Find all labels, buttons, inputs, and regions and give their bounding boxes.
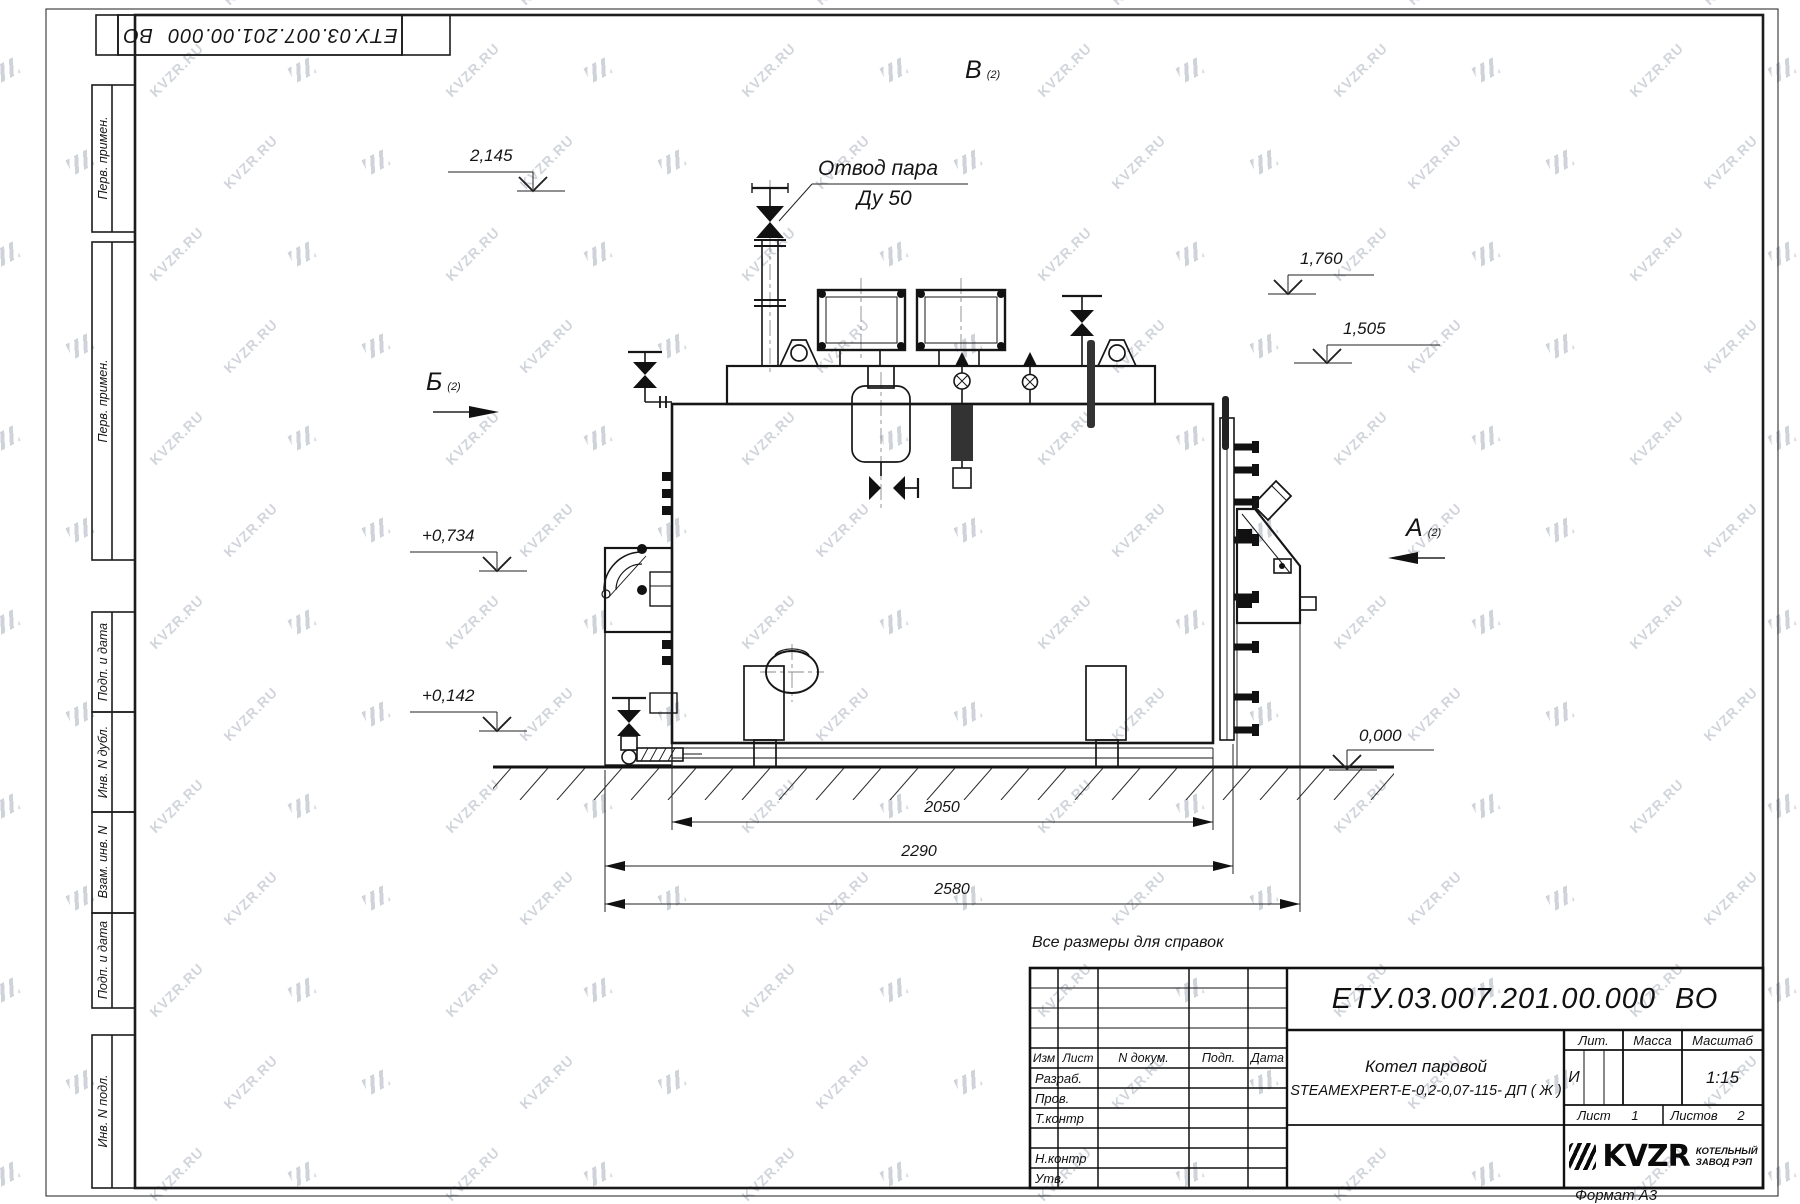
company-logo-icon [1569, 1143, 1596, 1170]
tb-col-data: Дата [1248, 1048, 1287, 1068]
tb-masshtab-label: Масштаб [1682, 1031, 1763, 1049]
level-value-1760: 1,760 [1300, 249, 1343, 269]
view-suffix: (2) [447, 381, 460, 393]
drawing-sheet: { "watermark": { "text": "KVZR.RU" }, "m… [0, 0, 1800, 1200]
dim-value-2050: 2050 [924, 799, 960, 817]
view-marker-v: В(2) [965, 56, 1000, 85]
tb-lit-label: Лит. [1564, 1031, 1623, 1049]
ground [493, 767, 1394, 800]
view-marker-a: А(2) [1406, 514, 1441, 543]
dim-value-2580: 2580 [934, 881, 970, 899]
product-line2: STEAMEXPERT-E-0,2-0,07-115- ДП ( Ж ) [1290, 1083, 1561, 1099]
level-gauge [951, 352, 973, 488]
tb-sheet-value: 1 [1620, 1106, 1650, 1124]
boiler-body [602, 183, 1316, 767]
level-value-1505: 1,505 [1343, 319, 1386, 339]
steam-outlet-label-line1: Отвод пара [818, 157, 938, 181]
tb-sheet-label: Лист [1572, 1106, 1616, 1124]
shell-nozzle-stubs [662, 472, 672, 665]
gauge-strip [1087, 340, 1095, 428]
tb-sheets-label: Листов [1668, 1106, 1720, 1124]
tb-row-prov: Пров. [1032, 1089, 1101, 1107]
product-line1: Котел паровой [1365, 1057, 1487, 1077]
tb-col-podp: Подп. [1189, 1048, 1248, 1068]
tb-row-razrab: Разраб. [1032, 1069, 1101, 1087]
tb-product-name: Котел паровой STEAMEXPERT-E-0,2-0,07-115… [1290, 1033, 1562, 1123]
company-line2: ЗАВОД РЭП [1696, 1157, 1758, 1168]
margin-label-podp-data-2: Подп. и дата [96, 921, 110, 999]
tb-col-list: Лист [1058, 1048, 1098, 1068]
level-mark-0734 [410, 552, 527, 571]
hatch-box-1 [818, 290, 905, 366]
view-suffix: (2) [1428, 527, 1441, 539]
level-mark-1505 [1294, 345, 1440, 363]
margin-label-podp-data-1: Подп. и дата [96, 623, 110, 701]
level-mark-2145 [448, 172, 565, 191]
deck-valve-small [1023, 352, 1038, 404]
tb-massa-label: Масса [1623, 1031, 1682, 1049]
tb-designation: ЕТУ.03.007.201.00.000 ВО [1290, 970, 1760, 1028]
tb-lit-value: И [1564, 1052, 1584, 1103]
rear-flange [1220, 396, 1259, 740]
shell [672, 404, 1213, 743]
margin-label-inv-podl: Инв. N подл. [96, 1074, 110, 1147]
company-subtitle: КОТЕЛЬНЫЙ ЗАВОД РЭП [1696, 1146, 1758, 1168]
tb-sheets-value: 2 [1726, 1106, 1756, 1124]
margin-label-perv-primen-1: Перв. примен. [96, 116, 110, 199]
format-label: Формат А3 [1575, 1187, 1657, 1204]
level-value-2145: 2,145 [470, 146, 513, 166]
view-letter-a: А [1406, 514, 1423, 542]
margin-label-inv-dubl: Инв. N дубл. [96, 726, 110, 798]
rear-wedge-box [1237, 481, 1316, 767]
tb-scale-value: 1:15 [1682, 1052, 1763, 1103]
level-value-0734: +0,734 [422, 526, 474, 546]
centerlines [760, 180, 961, 702]
margin-label-perv-primen-2: Перв. примен. [96, 359, 110, 442]
tb-col-izm: Изм [1030, 1048, 1058, 1068]
lifting-lug-right [1098, 340, 1136, 366]
company-line1: КОТЕЛЬНЫЙ [1696, 1146, 1758, 1157]
view-marker-b: Б(2) [426, 368, 461, 397]
view-arrow-b [433, 406, 499, 418]
front-box [602, 544, 677, 765]
level-value-0142: +0,142 [422, 686, 474, 706]
margin-label-vzam-inv: Взам. инв. N [96, 826, 110, 899]
steam-valve [756, 206, 784, 238]
steam-outlet-label-line2: Ду 50 [857, 187, 912, 211]
level-mark-0142 [410, 712, 527, 731]
deck-valve-right [1062, 296, 1102, 428]
lifting-lug-left [780, 340, 818, 366]
tb-col-ndoc: N докум. [1098, 1048, 1189, 1068]
drain-valve [612, 698, 702, 764]
tb-row-utv: Утв. [1032, 1169, 1101, 1187]
reference-note: Все размеры для справок [1032, 934, 1224, 952]
shell-left-valve [628, 352, 672, 408]
tb-row-tkontr: Т.контр [1032, 1109, 1101, 1127]
level-mark-1760 [1268, 275, 1374, 294]
cyclone-separator [852, 366, 918, 500]
tb-company-cell: KVZR КОТЕЛЬНЫЙ ЗАВОД РЭП [1566, 1127, 1761, 1186]
supports [672, 666, 1213, 767]
company-logo-text: KVZR [1602, 1139, 1689, 1174]
view-suffix: (2) [987, 69, 1000, 81]
view-arrow-a [1388, 552, 1445, 564]
stamp-designation-rotated: ЕТУ.03.007.201.00.000 ВО [118, 15, 402, 55]
view-letter-b: Б [426, 368, 442, 396]
tb-row-nkontr: Н.контр [1032, 1149, 1101, 1167]
dim-value-2290: 2290 [901, 843, 937, 861]
view-letter-v: В [965, 56, 982, 84]
level-value-0000: 0,000 [1359, 726, 1402, 746]
